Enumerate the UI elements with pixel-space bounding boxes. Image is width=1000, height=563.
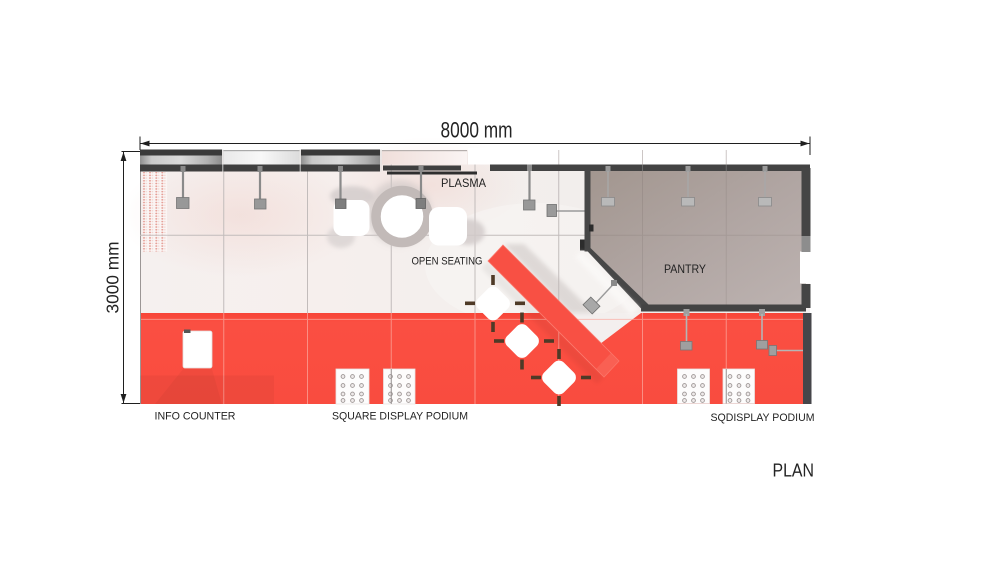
svg-text:8000 mm: 8000 mm	[441, 118, 513, 143]
svg-text:SQUARE DISPLAY PODIUM: SQUARE DISPLAY PODIUM	[332, 411, 468, 423]
svg-text:PANTRY: PANTRY	[664, 264, 706, 276]
svg-text:OPEN SEATING: OPEN SEATING	[412, 256, 483, 268]
svg-text:3000 mm: 3000 mm	[103, 242, 123, 314]
svg-text:PLASMA: PLASMA	[441, 178, 486, 190]
svg-text:PLAN: PLAN	[773, 460, 815, 481]
svg-text:SQDISPLAY PODIUM: SQDISPLAY PODIUM	[711, 412, 815, 424]
svg-text:INFO COUNTER: INFO COUNTER	[155, 411, 236, 423]
